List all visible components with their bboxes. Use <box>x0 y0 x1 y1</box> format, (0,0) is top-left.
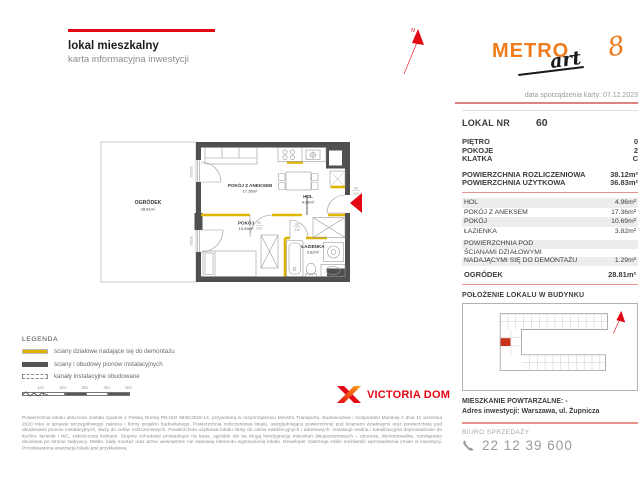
date-divider <box>455 102 638 104</box>
structural-walls <box>195 142 351 282</box>
date-note: data sporządzenia karty: 07.12.2023 <box>455 92 638 99</box>
doc-subtitle: karta informacyjna inwestycji <box>68 54 215 65</box>
room-label: POKÓJ Z ANEKSEM <box>464 208 528 218</box>
pink-divider <box>462 192 638 194</box>
room-row-aneks: POKÓJ Z ANEKSEM 17.36m² <box>462 208 638 218</box>
lokal-number-row: LOKAL NR 60 <box>462 117 638 129</box>
dim-entrance-door: 90 210 <box>352 187 360 196</box>
room-row-pokoj: POKÓJ 10.69m² <box>462 217 638 227</box>
garden-area-value: 28.81m² <box>141 207 156 212</box>
garden-value: 28.81m² <box>608 270 636 280</box>
logo-eight-text: 8 <box>606 31 628 63</box>
victoria-dom-logo: VICTORIA DOM <box>336 385 450 404</box>
attr-label: KLATKA <box>462 155 492 164</box>
dim-bedroom-door: 90 210 <box>256 221 263 230</box>
building-position-map <box>462 303 638 391</box>
repeatable-flat-label: MIESZKANIE POWTARZALNE: - <box>462 398 638 405</box>
entrance-arrow-icon <box>350 193 362 213</box>
room-row-lazienka: ŁAZIENKA 3.82m² <box>462 227 638 237</box>
attributes-group: PIĘTRO 0 POKOJE 2 KLATKA C <box>462 138 638 164</box>
garden-row: OGRÓDEK 28.81m² <box>462 270 638 280</box>
legend-title: LEGENDA <box>22 336 175 343</box>
attr-value: C <box>633 155 638 164</box>
hall-label: HOL <box>303 194 313 199</box>
legend-item-ducts: kanały instalacyjne obudowane <box>22 373 175 380</box>
room-label: HOL <box>464 198 478 208</box>
investment-address: Adres inwestycji: Warszawa, ul. Żupnicza <box>462 408 638 415</box>
dim-balcony-door-bottom: 90/230 <box>190 236 194 246</box>
pink-divider <box>462 284 638 286</box>
dim-balcony-door-top: 200/230 <box>190 166 194 178</box>
legend-item-shafts: ściany i obudowy pionów instalacyjnych <box>22 361 175 368</box>
highlighted-unit <box>501 338 511 346</box>
svg-text:210: 210 <box>256 226 262 230</box>
phone-row: 22 12 39 600 <box>462 438 638 453</box>
area-summary-row: POWIERZCHNIA UŻYTKOWA 36.83m² <box>462 179 638 188</box>
dim-bathroom-door: 80 210 <box>294 223 301 232</box>
info-panel: LOKAL NR 60 PIĘTRO 0 POKOJE 2 KLATKA C P… <box>462 110 638 453</box>
dark-wall-swatch <box>22 362 48 367</box>
phone-icon <box>462 439 475 452</box>
disclaimer-text: Powierzchnia lokalu obliczona została zg… <box>22 416 442 452</box>
furniture <box>203 148 345 277</box>
demountable-line: ŚCIANAMI DZIAŁOWYMI <box>462 249 638 258</box>
bathroom-label: ŁAZIENKA <box>301 244 325 249</box>
room-label: POKÓJ <box>464 217 487 227</box>
area-value: 36.83m² <box>610 179 638 188</box>
svg-text:210: 210 <box>294 228 300 232</box>
pink-divider <box>462 422 638 424</box>
sales-office-label: BIURO SPRZEDAŻY <box>462 429 638 436</box>
scale-zigzag <box>22 390 52 398</box>
doc-title: lokal mieszkalny <box>68 40 215 52</box>
room-area-list: HOL 4.96m² POKÓJ Z ANEKSEM 17.36m² POKÓJ… <box>462 198 638 236</box>
floor-plan: OGRÓDEK 28.81m² <box>50 125 365 295</box>
victoria-dom-text: VICTORIA DOM <box>367 389 450 401</box>
meter-cabinet <box>330 171 345 187</box>
lokal-number: 60 <box>536 117 548 129</box>
accent-bar <box>68 29 215 32</box>
room-value: 17.36m² <box>611 208 636 218</box>
demountable-area-block: POWIERZCHNIA POD ŚCIANAMI DZIAŁOWYMI NAD… <box>462 240 638 266</box>
phone-number: 22 12 39 600 <box>482 438 573 453</box>
living-room-area: 17.36m² <box>243 189 258 194</box>
metroart-logo: METRO art 8 <box>492 40 640 84</box>
living-room-label: POKÓJ Z ANEKSEM <box>228 181 272 188</box>
dashed-duct-swatch <box>22 374 48 379</box>
attr-row-klatka: KLATKA C <box>462 155 638 164</box>
building-position-title: POŁOŻENIE LOKALU W BUDYNKU <box>462 292 638 299</box>
area-label: POWIERZCHNIA UŻYTKOWA <box>462 179 565 188</box>
map-compass-icon <box>613 311 625 333</box>
lokal-label: LOKAL NR <box>462 118 510 128</box>
svg-text:80: 80 <box>295 223 299 227</box>
bathroom-area: 3.82m² <box>307 250 320 255</box>
bedroom-label: POKÓJ <box>238 219 255 226</box>
demountable-line: POWIERZCHNIA POD <box>462 240 638 249</box>
svg-text:90: 90 <box>257 221 261 225</box>
legend-item-demountable: ściany działowe nadające się do demontaż… <box>22 348 175 355</box>
room-row-hol: HOL 4.96m² <box>462 198 638 208</box>
building-outline <box>463 304 637 388</box>
victoria-dom-x-icon <box>336 385 362 404</box>
compass-north-icon: N <box>398 24 434 78</box>
demountable-line: NADAJĄCYMI SIĘ DO DEMONTAŻU 1.29m² <box>462 257 638 266</box>
svg-text:210: 210 <box>353 192 359 196</box>
svg-text:N: N <box>411 28 415 34</box>
svg-text:90: 90 <box>354 187 358 191</box>
installation-shaft <box>329 151 342 166</box>
room-label: ŁAZIENKA <box>464 227 497 237</box>
hall-area: 4.96m² <box>302 200 315 205</box>
room-value: 10.69m² <box>611 217 636 227</box>
bedroom-area: 10.69m² <box>239 226 254 231</box>
yellow-wall-swatch <box>22 349 48 354</box>
garden-label: OGRÓDEK <box>464 270 503 280</box>
room-value: 4.96m² <box>615 198 636 208</box>
legend: LEGENDA ściany działowe nadające się do … <box>22 336 175 386</box>
doc-header: lokal mieszkalny karta informacyjna inwe… <box>68 29 215 65</box>
scale-segments <box>22 392 138 396</box>
garden-area <box>101 142 196 282</box>
garden-label: OGRÓDEK <box>135 198 162 206</box>
room-value: 3.82m² <box>615 227 636 237</box>
area-summary-group: POWIERZCHNIA ROZLICZENIOWA 38.12m² POWIE… <box>462 171 638 188</box>
scale-bar: 1m 2m 3m 4m 5m <box>22 385 138 396</box>
